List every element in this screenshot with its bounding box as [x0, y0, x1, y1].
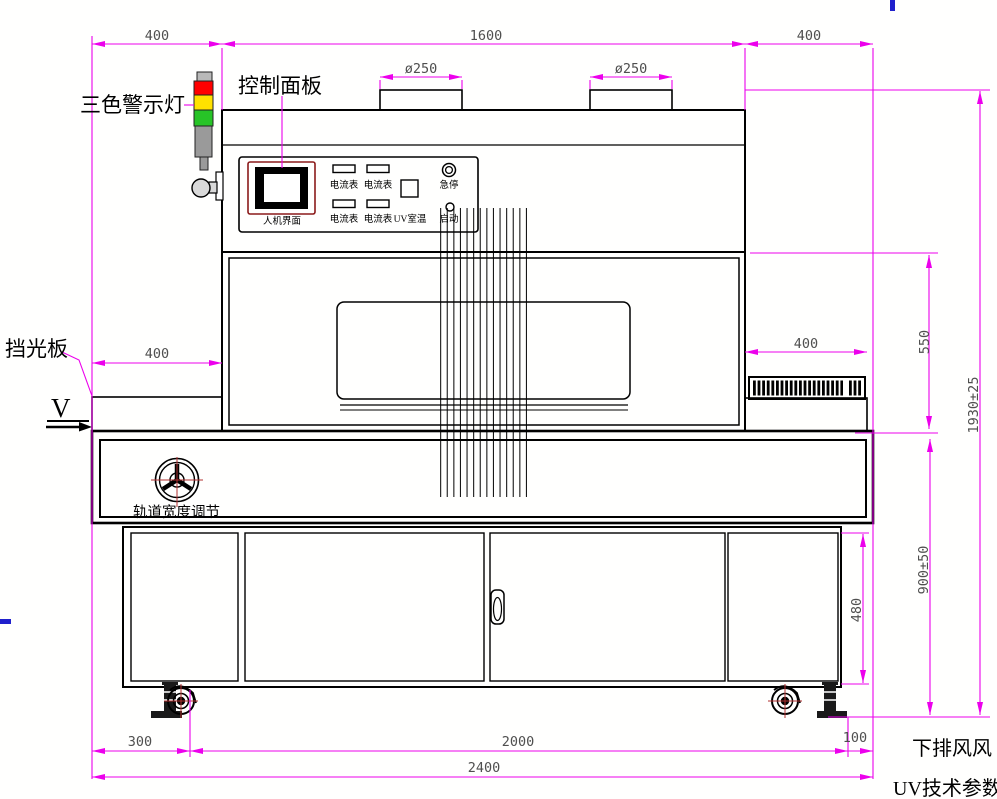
chamber-window — [337, 302, 630, 410]
dim-bottom-total: 2400 — [468, 760, 501, 776]
caster-right — [768, 684, 802, 718]
estop-button[interactable] — [443, 164, 456, 177]
uv-chamber — [222, 252, 745, 431]
cabinet-panel-left — [131, 533, 238, 681]
exhaust-port-right — [590, 90, 672, 110]
label-warning-light: 三色警示灯 — [80, 93, 185, 117]
hmi-screen[interactable] — [248, 162, 315, 214]
dim-top-center: 1600 — [470, 28, 503, 44]
label-view-marker: V — [51, 393, 71, 423]
tower-red-segment — [194, 81, 213, 95]
label-control-panel: 控制面板 — [238, 74, 322, 98]
label-light-shield: 挡光板 — [5, 337, 68, 361]
dim-bottom-center: 2000 — [502, 734, 535, 750]
dim-mid-right: 400 — [794, 336, 818, 352]
label-hmi: 人机界面 — [263, 215, 301, 227]
shelf-right — [745, 398, 867, 431]
track-width-handwheel[interactable] — [151, 457, 203, 507]
label-ammeter-4: 电流表 — [364, 213, 393, 225]
dim-height-total: 1930±25 — [966, 377, 982, 434]
drawing-svg: 400 1600 400 ø250 ø250 400 400 550 900±5… — [0, 0, 997, 799]
blue-mark-left — [0, 619, 11, 624]
label-track-width: 轨道宽度调节 — [133, 504, 220, 521]
door-handle[interactable] — [491, 590, 504, 624]
label-uv-temp: UV室温 — [394, 213, 427, 225]
dim-mid-left: 400 — [145, 346, 169, 362]
dim-top-left: 400 — [145, 28, 169, 44]
exhaust-port-left — [380, 90, 462, 110]
cabinet-door-left[interactable] — [245, 533, 484, 681]
dim-top-right: 400 — [797, 28, 821, 44]
dim-height-chamber: 550 — [917, 330, 933, 354]
ammeter-4 — [367, 200, 389, 208]
dim-bottom-left: 300 — [128, 734, 152, 750]
warning-light-tower — [192, 72, 223, 200]
label-ammeter-2: 电流表 — [364, 179, 393, 191]
tower-green-segment — [194, 110, 213, 126]
cabinet-panel-right — [728, 533, 838, 681]
tower-yellow-segment — [194, 95, 213, 110]
ammeter-3 — [333, 200, 355, 208]
cabinet-door-right[interactable] — [490, 533, 725, 681]
dim-cabinet-height: 480 — [849, 598, 865, 622]
label-ammeter-1: 电流表 — [330, 179, 359, 191]
ammeter-2 — [367, 165, 389, 173]
label-ammeter-3: 电流表 — [330, 213, 359, 225]
dim-port-left: ø250 — [405, 61, 438, 77]
note-uv-params: UV技术参数 — [893, 777, 997, 799]
ammeter-1 — [333, 165, 355, 173]
text-layer: 400 1600 400 ø250 ø250 400 400 550 900±5… — [5, 28, 997, 799]
engineering-drawing-canvas: 400 1600 400 ø250 ø250 400 400 550 900±5… — [0, 0, 997, 799]
cabinet — [123, 527, 841, 687]
dim-port-right: ø250 — [615, 61, 648, 77]
light-shield-shelf-left — [92, 397, 222, 431]
label-estop: 急停 — [439, 179, 459, 191]
note-exhaust: 下排风风 — [912, 737, 992, 760]
blue-mark-top — [890, 0, 895, 11]
uv-temp-display — [401, 180, 418, 197]
dim-bottom-right: 100 — [843, 730, 867, 746]
label-start: 启动 — [439, 213, 458, 225]
dim-height-base: 900±50 — [916, 546, 932, 595]
vent-grille — [749, 377, 865, 399]
